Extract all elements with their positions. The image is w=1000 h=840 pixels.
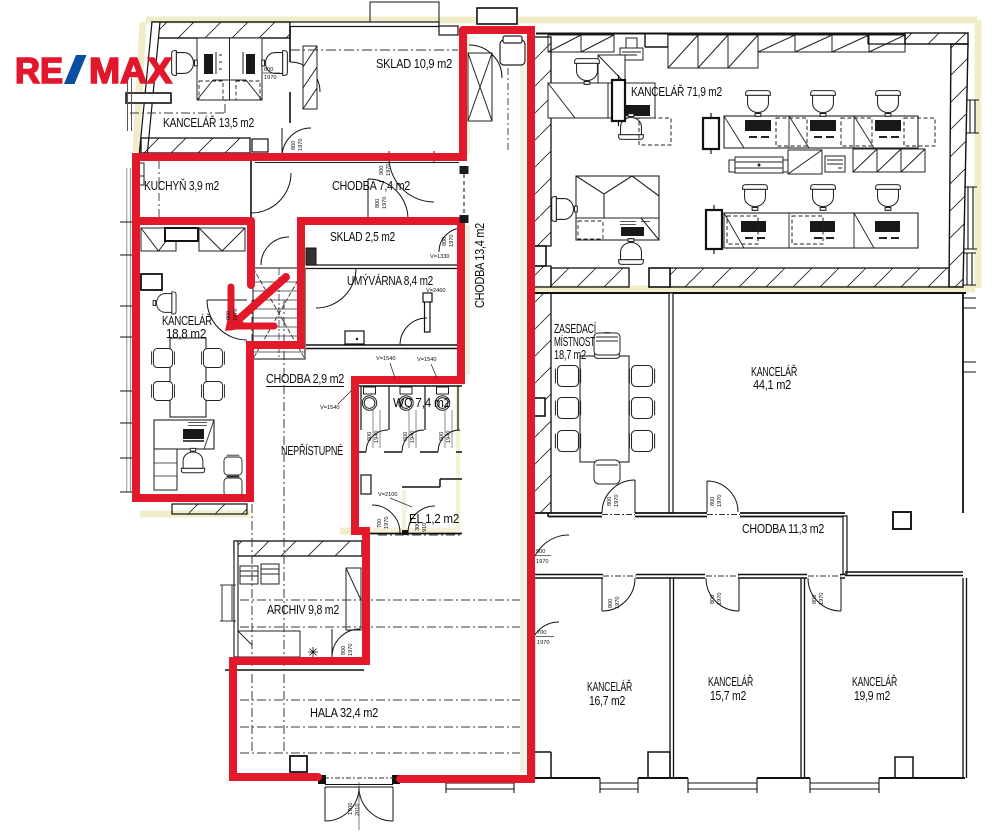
- svg-text:600: 600: [367, 432, 373, 441]
- svg-text:18,7 m2: 18,7 m2: [554, 347, 586, 362]
- svg-text:1700: 1700: [348, 803, 354, 815]
- svg-text:600: 600: [403, 432, 409, 441]
- svg-text:16,7 m2: 16,7 m2: [589, 693, 625, 708]
- svg-text:800: 800: [291, 141, 297, 150]
- svg-text:HALA 32,4 m2: HALA 32,4 m2: [310, 705, 378, 720]
- svg-text:1970: 1970: [382, 197, 388, 209]
- svg-text:NEPŘÍSTUPNÉ: NEPŘÍSTUPNÉ: [281, 443, 343, 458]
- svg-text:700: 700: [377, 519, 383, 528]
- svg-text:CHODBA 2,9 m2: CHODBA 2,9 m2: [266, 371, 344, 386]
- svg-text:WC 7,4 m2: WC 7,4 m2: [393, 395, 450, 410]
- svg-text:KANCELÁŘ: KANCELÁŘ: [852, 674, 897, 689]
- svg-text:19,9 m2: 19,9 m2: [854, 688, 890, 703]
- svg-text:1940: 1940: [410, 431, 416, 443]
- svg-text:800: 800: [442, 237, 448, 246]
- svg-text:900: 900: [379, 166, 385, 175]
- svg-text:KANCELÁŘ 71,9 m2: KANCELÁŘ 71,9 m2: [631, 84, 722, 99]
- svg-text:ARCHIV 9,8 m2: ARCHIV 9,8 m2: [267, 602, 339, 617]
- svg-text:SKLAD 10,9 m2: SKLAD 10,9 m2: [376, 56, 452, 71]
- svg-text:1970: 1970: [449, 235, 455, 247]
- svg-text:1970: 1970: [537, 640, 549, 646]
- svg-text:1970: 1970: [298, 139, 304, 151]
- svg-text:2010: 2010: [355, 804, 361, 816]
- svg-text:800: 800: [812, 595, 818, 604]
- svg-text:V=2100: V=2100: [378, 492, 397, 498]
- svg-text:800: 800: [375, 199, 381, 208]
- svg-text:MAX: MAX: [89, 50, 172, 91]
- svg-text:1970: 1970: [264, 75, 276, 81]
- svg-text:V=1540: V=1540: [417, 357, 436, 363]
- svg-text:300: 300: [415, 522, 421, 531]
- svg-text:V=1540: V=1540: [376, 356, 395, 362]
- svg-text:700: 700: [537, 630, 546, 636]
- svg-text:V=1330: V=1330: [430, 254, 449, 260]
- svg-text:44,1 m2: 44,1 m2: [753, 377, 791, 392]
- svg-text:KANCELÁŘ: KANCELÁŘ: [708, 674, 753, 689]
- svg-text:SKLAD 2,5 m2: SKLAD 2,5 m2: [330, 229, 395, 244]
- svg-text:KANCELÁŘ 13,5 m2: KANCELÁŘ 13,5 m2: [163, 115, 254, 130]
- svg-text:1970: 1970: [717, 495, 723, 507]
- svg-text:800: 800: [226, 311, 232, 320]
- svg-text:1970: 1970: [614, 495, 620, 507]
- svg-text:600: 600: [264, 67, 273, 73]
- svg-text:800: 800: [608, 599, 614, 608]
- svg-text:UMÝVÁRNA 8,4 m2: UMÝVÁRNA 8,4 m2: [347, 273, 433, 288]
- svg-text:15,7 m2: 15,7 m2: [710, 688, 746, 703]
- svg-text:CHODBA 7,4 m2: CHODBA 7,4 m2: [332, 178, 410, 193]
- svg-text:18,8 m2: 18,8 m2: [166, 326, 206, 341]
- svg-text:1970: 1970: [348, 644, 354, 656]
- svg-text:1970: 1970: [819, 593, 825, 605]
- svg-text:1970: 1970: [717, 593, 723, 605]
- svg-text:900: 900: [536, 549, 545, 555]
- svg-text:910: 910: [422, 523, 428, 532]
- svg-text:1940: 1940: [446, 431, 452, 443]
- svg-text:1970: 1970: [536, 559, 548, 565]
- svg-text:800: 800: [341, 646, 347, 655]
- svg-text:KUCHYŇ 3,9 m2: KUCHYŇ 3,9 m2: [144, 178, 219, 193]
- svg-text:RE: RE: [15, 50, 63, 91]
- svg-text:1970: 1970: [384, 517, 390, 529]
- svg-text:V=2460: V=2460: [426, 288, 445, 294]
- svg-text:800: 800: [710, 497, 716, 506]
- svg-text:1970: 1970: [386, 164, 392, 176]
- svg-text:KANCELÁŘ: KANCELÁŘ: [587, 679, 632, 694]
- svg-text:1970: 1970: [233, 309, 239, 321]
- svg-text:1940: 1940: [374, 431, 380, 443]
- svg-text:600: 600: [439, 432, 445, 441]
- svg-text:800: 800: [710, 595, 716, 604]
- svg-text:CHODBA 13,4 m2: CHODBA 13,4 m2: [472, 223, 487, 308]
- svg-text:800: 800: [607, 497, 613, 506]
- svg-text:1970: 1970: [615, 597, 621, 609]
- svg-text:CHODBA 11,3 m2: CHODBA 11,3 m2: [742, 521, 824, 536]
- svg-text:V=1540: V=1540: [320, 405, 339, 411]
